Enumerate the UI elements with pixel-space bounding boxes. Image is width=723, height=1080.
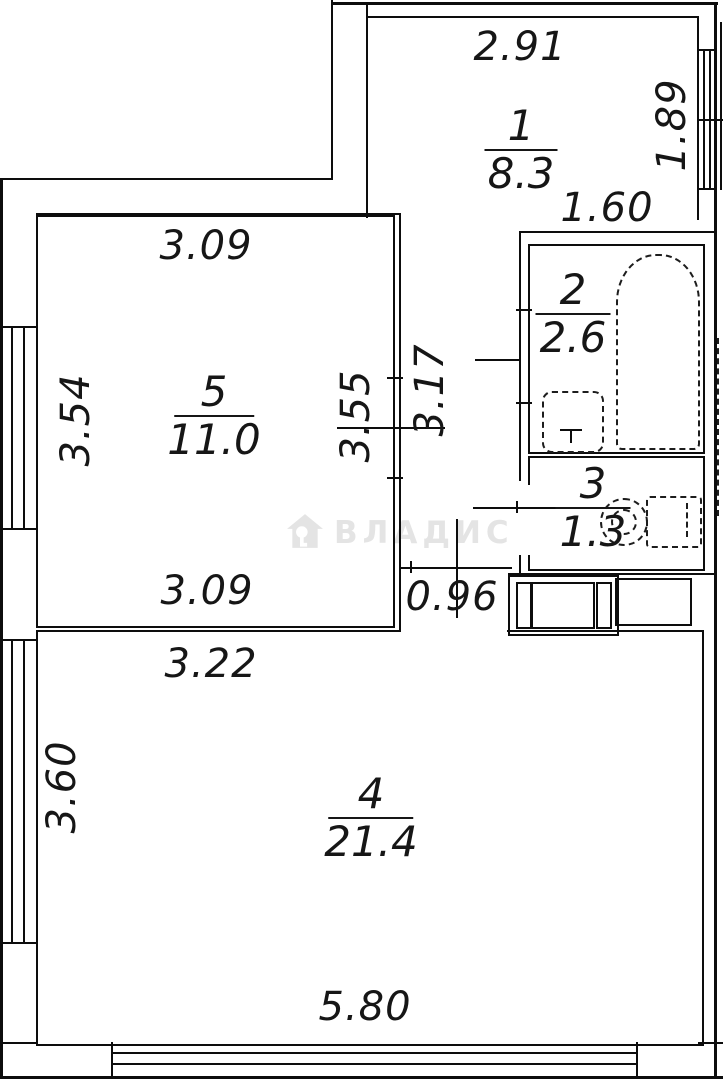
dimension-tick — [516, 501, 518, 513]
closet-panel — [596, 582, 612, 629]
wall-line — [366, 2, 368, 218]
room-label-5: 5 11.0 — [167, 370, 261, 462]
toilet-tank-divider — [686, 503, 688, 537]
window-cap — [0, 326, 38, 328]
room-area: 2.6 — [540, 316, 607, 360]
room-area: 21.4 — [324, 820, 418, 864]
sink-drain-mark — [570, 429, 572, 443]
doorway-hall-to-room4 — [401, 628, 507, 634]
wall-line — [714, 2, 717, 1078]
dim-room1-window: 1.89 — [651, 78, 693, 171]
dim-bath-width: 1.60 — [560, 187, 653, 229]
window-pane-line — [11, 326, 13, 530]
window-pane-line — [112, 1063, 637, 1065]
wall-tick — [410, 561, 412, 573]
wall-line — [36, 213, 401, 215]
wall-line — [0, 178, 333, 180]
bathtub — [616, 254, 700, 450]
wall-line — [331, 0, 333, 180]
dim-room5-width-bottom: 3.09 — [160, 570, 253, 612]
window-cap — [0, 942, 38, 944]
window-cap — [111, 1042, 113, 1078]
wall-line — [331, 2, 718, 5]
label-leader-line — [473, 507, 557, 509]
wall-line — [698, 1042, 723, 1044]
room-area: 11.0 — [167, 418, 261, 462]
room-number: 5 — [201, 370, 228, 414]
room-label-3: 3 1.3 — [556, 462, 631, 554]
window-pane-line — [11, 639, 13, 944]
dim-hall-passage-width: 0.96 — [405, 576, 498, 618]
wall-line — [720, 22, 722, 190]
shaft-dashed-line — [717, 338, 719, 516]
wall-line — [0, 1042, 38, 1044]
dimension-tick — [516, 309, 532, 311]
room-area: 8.3 — [488, 152, 555, 196]
window-cap — [0, 639, 38, 641]
dim-room5-depth-right: 3.55 — [335, 369, 377, 462]
dim-room4-width-bottom: 5.80 — [318, 986, 411, 1028]
room-number: 2 — [560, 268, 587, 312]
dimension-tick — [387, 377, 403, 379]
window-cap — [0, 528, 38, 530]
dimension-tick — [697, 119, 723, 121]
window-pane-line — [23, 326, 25, 530]
dim-room4-depth-left: 3.60 — [41, 740, 83, 833]
room-number: 3 — [580, 462, 607, 506]
room-label-1: 1 8.3 — [485, 104, 558, 196]
closet-panel — [516, 582, 532, 629]
shelf — [615, 578, 692, 626]
dim-room1-width: 2.91 — [473, 26, 566, 68]
room-number: 4 — [358, 772, 385, 816]
window-cap — [636, 1042, 638, 1078]
room-area: 1.3 — [560, 510, 627, 554]
sink — [542, 391, 604, 453]
room-label-2: 2 2.6 — [536, 268, 611, 360]
toilet-tank — [646, 496, 702, 548]
wall-line — [0, 1076, 723, 1079]
dimension-line — [475, 359, 521, 361]
dimension-tick — [516, 402, 532, 404]
dim-hall-depth: 3.17 — [409, 343, 451, 436]
room-label-4: 4 21.4 — [324, 772, 418, 864]
window-pane-line — [23, 639, 25, 944]
room-number: 1 — [508, 104, 535, 148]
closet-panel — [531, 582, 595, 629]
wall-line — [519, 231, 521, 481]
wall-line — [366, 16, 698, 18]
dimension-tick — [387, 477, 403, 479]
window-pane-line — [112, 1052, 637, 1054]
dim-room4-width-top: 3.22 — [164, 643, 257, 685]
window-cap — [697, 49, 717, 51]
dim-room5-width-top: 3.09 — [159, 225, 252, 267]
floor-plan: ВЛАДИС — [0, 0, 723, 1080]
dim-room5-depth-left: 3.54 — [55, 373, 97, 466]
window-cap — [697, 188, 717, 190]
doorway-wc — [527, 485, 531, 555]
wall-line — [519, 231, 716, 233]
wall-line — [399, 215, 401, 632]
